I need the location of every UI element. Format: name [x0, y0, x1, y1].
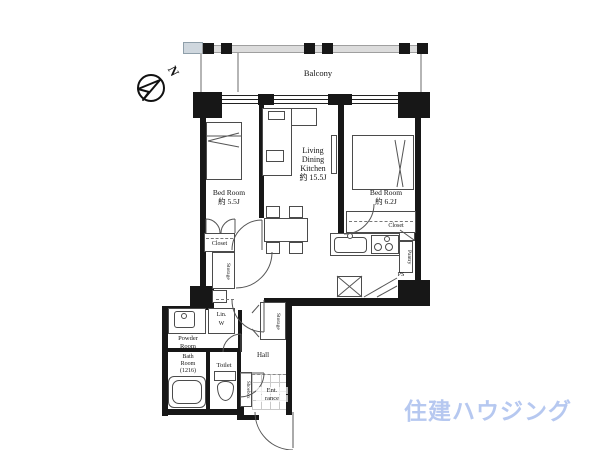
entrance-step — [237, 415, 259, 420]
closet1-label: Closet — [204, 241, 235, 248]
sofa-cushion — [266, 150, 284, 162]
bath-label-line3: (1216) — [172, 368, 204, 375]
ps-label: PS — [394, 272, 408, 279]
opening-dashed-line — [216, 299, 234, 300]
closet2-dashed-line — [349, 221, 413, 222]
linen-label: Lin. — [208, 312, 235, 319]
dining-chair — [289, 206, 303, 218]
closet2-label: Closet — [378, 223, 414, 230]
dining-chair — [266, 206, 280, 218]
pantry-label: Pantry — [402, 244, 411, 271]
pillar-top-left — [193, 92, 222, 118]
entrance-label-line2: rance — [256, 395, 288, 402]
floor-plan: Balcony Closet Storage Bed Room 約 5.5J L… — [0, 0, 600, 450]
bed-single — [206, 122, 242, 180]
powder-room-label-line1: Powder — [166, 335, 210, 342]
small-cabinet — [212, 290, 227, 303]
toilet-label: Toilet — [210, 362, 238, 369]
toilet-bowl — [217, 381, 234, 401]
bathtub-inner — [172, 380, 202, 404]
entrance-label-line1: Ent. — [256, 387, 288, 394]
pillar-top-right — [398, 92, 430, 118]
bedroom1-size: 約 5.5J — [202, 198, 256, 206]
dining-chair — [266, 242, 280, 254]
balcony-divider — [237, 53, 239, 92]
window-band — [222, 95, 398, 104]
powder-room-label-line2: Room — [166, 343, 210, 350]
toilet-tank — [214, 371, 236, 381]
closet-dashed-line — [206, 238, 233, 239]
compass-icon — [138, 75, 164, 101]
ldk-size: 約 15.5J — [287, 174, 339, 183]
bath-label-line1: Bath — [172, 354, 204, 361]
balcony-rail-post — [203, 43, 214, 54]
kitchen-faucet — [347, 233, 353, 239]
stove-burner — [384, 236, 390, 242]
wall-bottom-lower — [162, 409, 240, 415]
storage-bedroom-label: Storage — [216, 256, 230, 286]
bath-label-line2: Room — [172, 361, 204, 368]
watermark: 住建ハウジング — [404, 392, 572, 426]
balcony-divider — [420, 53, 422, 92]
washer-label: W — [208, 321, 235, 328]
hall-label: Hall — [249, 352, 277, 360]
balcony-rail-post — [221, 43, 232, 54]
balcony-rail-post — [417, 43, 428, 54]
kitchen-sink — [334, 237, 367, 253]
shoebox-label: Shoebox — [242, 374, 250, 405]
stove-burner — [385, 243, 393, 251]
wall-hall-powder — [238, 310, 242, 352]
wall-right — [415, 118, 421, 282]
bed-double — [352, 135, 414, 190]
compass-north-label: N — [162, 59, 184, 83]
dining-table — [264, 218, 308, 242]
storage-hall-label: Storage — [266, 306, 280, 336]
balcony-rail-post — [304, 43, 315, 54]
wall-bath-toilet — [206, 352, 210, 409]
dining-chair — [289, 242, 303, 254]
refrigerator-space — [337, 276, 362, 297]
bedroom2-size: 約 6.2J — [358, 198, 414, 206]
balcony-rail-post — [322, 43, 333, 54]
vanity-faucet — [181, 313, 187, 319]
sofa-cushion — [268, 111, 285, 120]
balcony-rail-post — [399, 43, 410, 54]
balcony-divider — [200, 53, 202, 92]
balcony-label: Balcony — [283, 69, 353, 79]
stove-burner — [374, 243, 382, 251]
